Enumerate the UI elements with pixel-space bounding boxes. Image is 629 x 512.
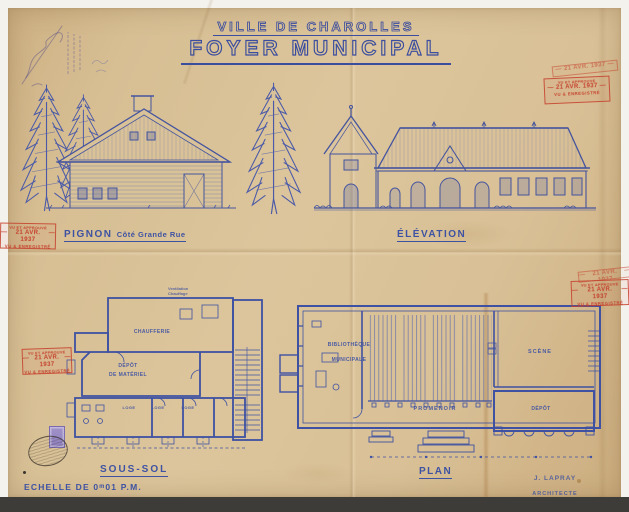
entry-steps (369, 431, 474, 452)
city-title: VILLE DE CHAROLLES (213, 19, 418, 36)
main-floor-plan-drawing (276, 291, 606, 466)
sous-sol-caption: SOUS-SOL (100, 459, 168, 477)
plan-caption: PLAN (419, 461, 452, 479)
approval-stamp-right-middle: VU ET APPROUVÉ —21 AVR. 1937— VU & ENREG… (571, 279, 629, 307)
stamp-dash: — (572, 288, 579, 302)
project-title: FOYER MUNICIPAL (181, 37, 450, 65)
plan-label: PLAN (419, 466, 452, 479)
gable-house (46, 96, 236, 208)
room-label-bibliotheque-1: BIBLIOTHÈQUE (328, 342, 371, 348)
room-label-chaufferie: CHAUFFERIE (134, 329, 170, 335)
room-label-depot-materiel-1: DÉPÔT (118, 363, 137, 369)
approval-stamp-left-middle: VU ET APPROUVÉ —21 AVR. 1937— VU & ENREG… (22, 347, 73, 375)
note-chauffage: Chauffage (168, 291, 188, 296)
scale-note: ECHELLE DE 0ᵐ01 P.M. (24, 482, 142, 492)
stamp-dash: — (555, 66, 562, 74)
main-roof (374, 122, 590, 171)
room-label-depot: DÉPÔT (531, 406, 550, 412)
sous-sol-label: SOUS-SOL (100, 464, 168, 477)
stamp-dash: — (607, 61, 614, 69)
room-label-scene: SCÈNE (528, 349, 552, 355)
stamp-dash: — (23, 356, 30, 370)
pine-tree-middle (236, 78, 314, 218)
pignon-caption: PIGNON Côté Grande Rue (64, 224, 186, 242)
stamp-date: 21 AVR. 1937 (31, 354, 63, 369)
seating-rows (368, 315, 492, 401)
sous-sol-plan-drawing (52, 285, 270, 460)
stamp-dash: — (621, 286, 628, 300)
room-label-depot-materiel-2: DE MATÉRIEL (109, 372, 147, 378)
pignon-sublabel: Côté Grande Rue (117, 230, 186, 239)
stamp-dash: — (600, 83, 607, 90)
stamp-dash: — (48, 230, 55, 244)
stamp-date: 21 AVR. 1937 (580, 286, 620, 301)
approval-stamp-top-right: VU ET APPROUVÉ —21 AVR. 1937— VU & ENREG… (543, 76, 610, 105)
approval-stamp-left-top: VU ET APPROUVÉ —21 AVR. 1937— VU & ENREG… (0, 223, 56, 250)
stamp-dash: — (64, 354, 71, 368)
room-label-loge-1: LOGE (123, 405, 136, 410)
pignon-label: PIGNON (64, 229, 112, 240)
stamp-date: 21 AVR. 1937 (564, 62, 606, 73)
title-block: VILLE DE CHAROLLES FOYER MUNICIPAL (160, 18, 472, 65)
scanned-drawing: VILLE DE CHAROLLES FOYER MUNICIPAL (0, 0, 629, 512)
pignon-elevation-drawing (18, 76, 240, 218)
stamp-date: 21 AVR. 1937 (9, 230, 46, 245)
stamp-dash: — (1, 230, 8, 244)
room-label-bibliotheque-2: MUNICIPALE (332, 357, 367, 363)
main-elevation-drawing (314, 98, 596, 218)
bibliotheque-furniture (298, 321, 339, 390)
room-label-loge-3: LOGE (182, 405, 195, 410)
room-label-loge-2: LOGE (152, 405, 165, 410)
elevation-caption: ÉLÉVATION (397, 224, 466, 242)
architect-name: J. LAPRAY (514, 475, 596, 482)
room-label-promenoir: PROMENOIR (414, 406, 457, 412)
depot-block (494, 391, 594, 436)
scanner-background-band (0, 497, 629, 512)
ink-speck (23, 471, 26, 474)
horizontal-fold-crease (8, 248, 621, 256)
elevation-label: ÉLÉVATION (397, 229, 466, 242)
stamp-bottom-line: VU & ENREGISTRÉ (1, 244, 55, 250)
corner-tower (324, 106, 378, 209)
plan-notes: Ventilation Chauffage (168, 286, 188, 296)
